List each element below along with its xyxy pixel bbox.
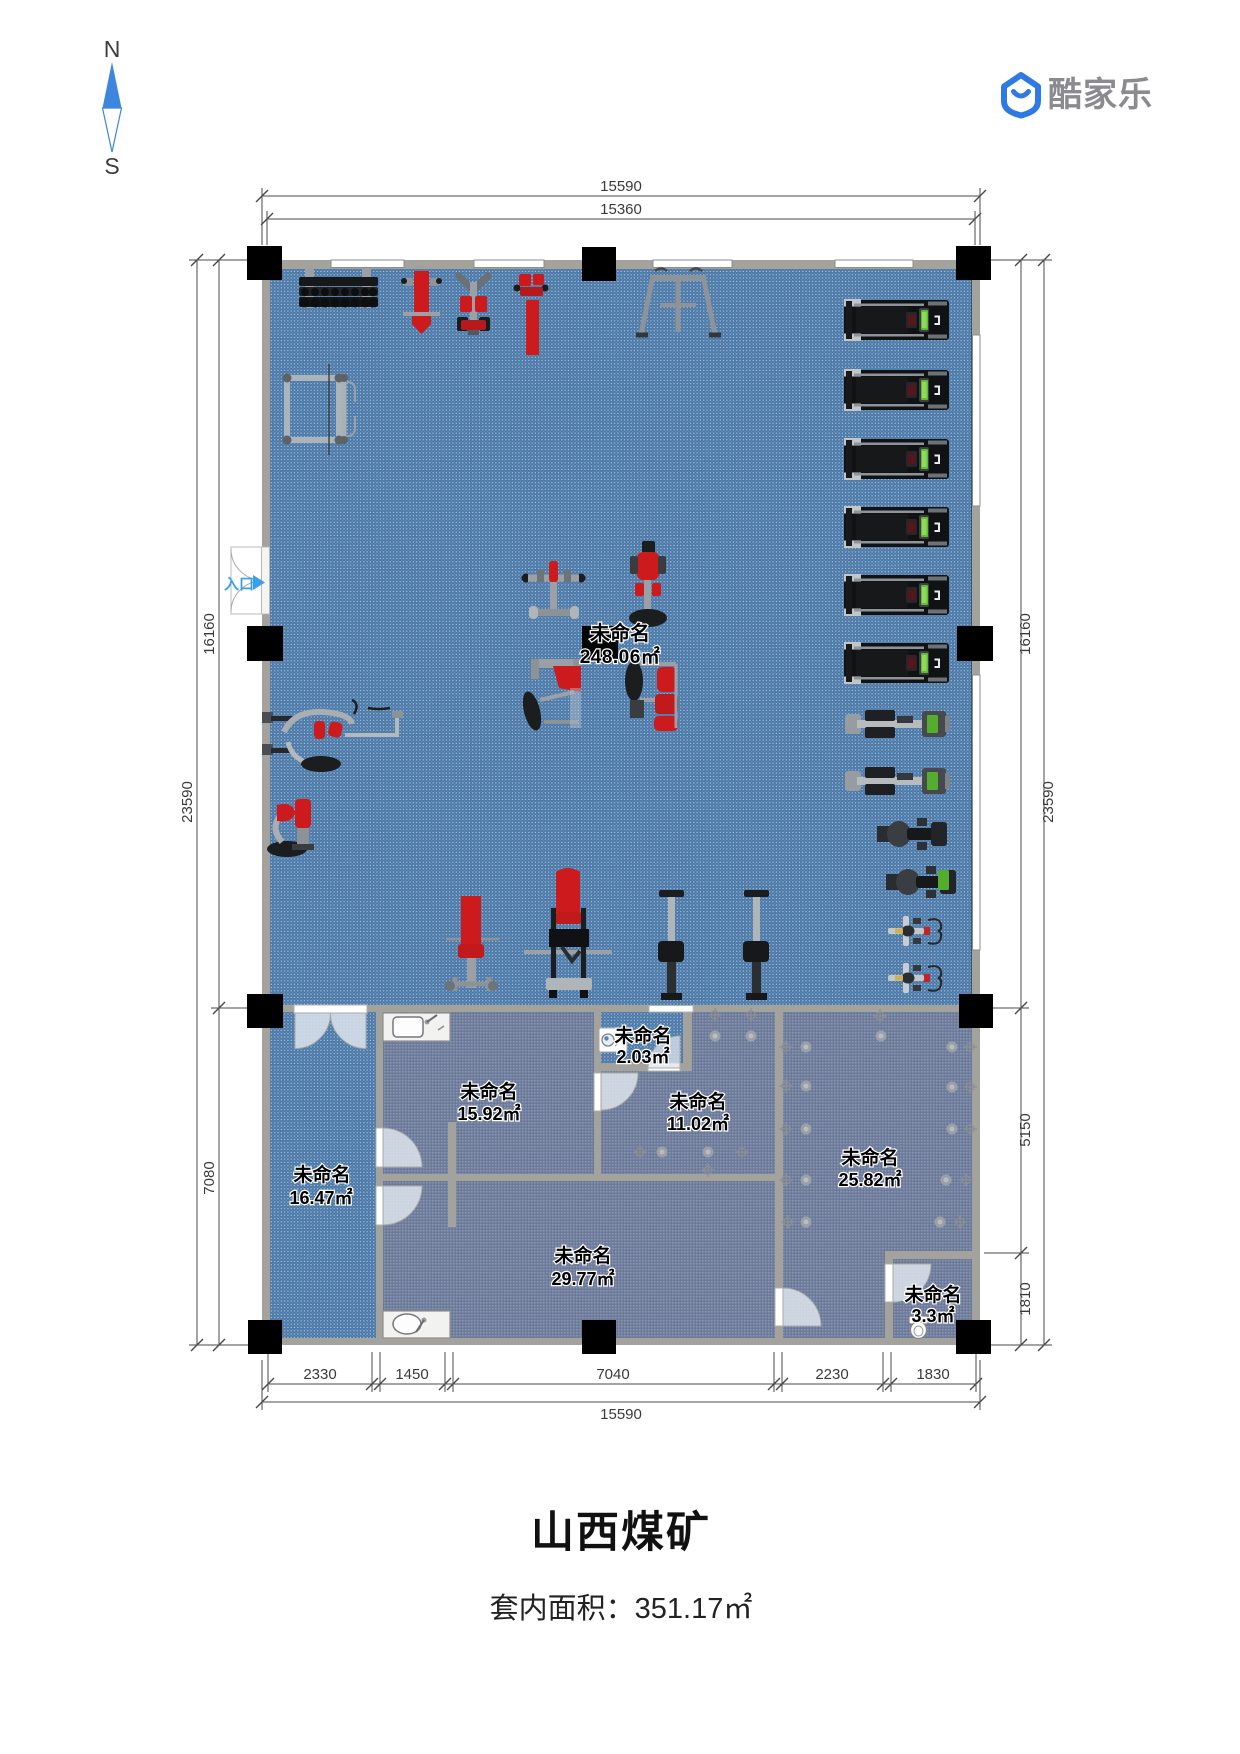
- svg-text:16160: 16160: [201, 613, 218, 655]
- svg-text:未命名: 未命名: [668, 1090, 726, 1113]
- svg-text:16160: 16160: [1017, 613, 1034, 655]
- svg-text:未命名: 未命名: [590, 621, 650, 645]
- svg-text:未命名: 未命名: [553, 1244, 611, 1267]
- svg-text:7040: 7040: [596, 1366, 629, 1383]
- svg-text:N: N: [104, 36, 121, 62]
- svg-text:25.82㎡: 25.82㎡: [838, 1169, 901, 1190]
- svg-text:15360: 15360: [600, 201, 642, 218]
- svg-text:套内面积：351.17㎡: 套内面积：351.17㎡: [490, 1592, 753, 1625]
- svg-text:未命名: 未命名: [903, 1283, 961, 1306]
- svg-text:11.02㎡: 11.02㎡: [667, 1113, 729, 1134]
- svg-text:未命名: 未命名: [613, 1024, 671, 1047]
- svg-text:23590: 23590: [1040, 781, 1057, 823]
- svg-text:29.77㎡: 29.77㎡: [551, 1268, 614, 1289]
- svg-text:未命名: 未命名: [459, 1080, 517, 1103]
- svg-text:3.3㎡: 3.3㎡: [911, 1305, 954, 1326]
- svg-text:16.47㎡: 16.47㎡: [289, 1187, 352, 1208]
- svg-text:7080: 7080: [201, 1161, 218, 1194]
- svg-text:248.06㎡: 248.06㎡: [580, 645, 661, 668]
- svg-text:2230: 2230: [815, 1366, 848, 1383]
- svg-text:5150: 5150: [1017, 1113, 1034, 1146]
- svg-text:未命名: 未命名: [292, 1163, 350, 1186]
- svg-text:15590: 15590: [600, 1406, 642, 1423]
- svg-text:2330: 2330: [303, 1366, 336, 1383]
- svg-text:1450: 1450: [395, 1366, 428, 1383]
- svg-text:未命名: 未命名: [840, 1146, 898, 1169]
- svg-text:15.92㎡: 15.92㎡: [457, 1103, 520, 1124]
- svg-text:1830: 1830: [916, 1366, 949, 1383]
- svg-text:15590: 15590: [600, 178, 642, 195]
- svg-text:2.03㎡: 2.03㎡: [616, 1046, 669, 1067]
- svg-text:1810: 1810: [1017, 1282, 1034, 1315]
- svg-text:酷家乐: 酷家乐: [1048, 76, 1153, 114]
- svg-text:23590: 23590: [179, 781, 196, 823]
- svg-text:山西煤矿: 山西煤矿: [531, 1509, 711, 1557]
- svg-text:S: S: [104, 153, 119, 179]
- svg-text:入口: 入口: [224, 576, 254, 593]
